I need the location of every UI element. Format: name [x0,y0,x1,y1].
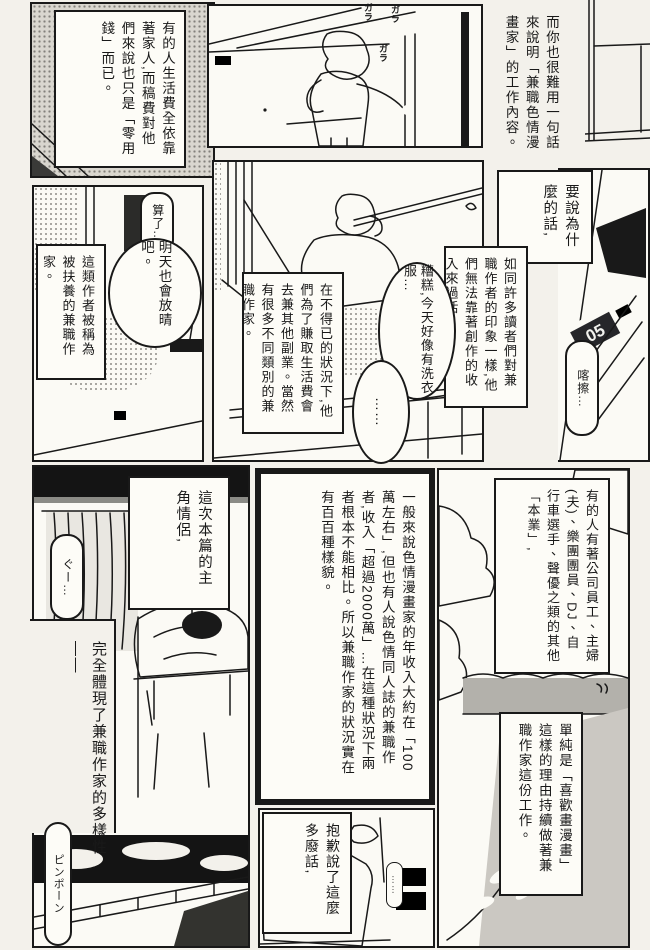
sfx-click-text: 喀擦… [574,369,590,408]
sfx-slide-door-1: ガラ [362,3,375,21]
sfx-bubble-click: 喀擦… [565,340,599,436]
corner-wall-art [585,0,650,148]
caption-allowance: 有的人生活費全依靠著家人,而稿費對他們來說也只是「零用錢」而已。 [54,10,186,168]
sfx-bubble-doorbell: ピンポーン [44,822,72,946]
caption-side-jobs: 在不得已的狀況下,他們為了賺取生活費會去兼其他副業。當然有很多不同類別的兼職作家… [242,272,344,434]
caption-income: 一般來說色情漫畫家的年收入大約在「100萬左右」,但也有人說色情同人誌的兼職作者… [255,468,435,805]
panel-hallway [207,4,483,148]
caption-other-jobs: 有的人有著公司員工、主婦(夫)、樂團團員、DJ、自行車選手、聲優之類的其他「本業… [494,478,610,674]
speech-bubble-tiny-dots: …… [386,862,403,908]
caption-reason: 單純是「喜歡畫漫畫」這樣的理由持續做著兼職作家這份工作。 [499,712,583,896]
panel-hallway-art [209,6,481,146]
sfx-slide-door-2: ガラ [389,5,402,23]
speech-bubble-dots: …… [352,360,410,464]
speech-tiny-dots-text: …… [389,875,401,895]
sfx-snore-text: ぐー… [59,558,75,597]
speech-laundry-text: 糟糕,今天好像有洗衣服… [400,264,434,398]
speech-dots-text: …… [372,397,390,427]
caption-dependent: 這類作者被稱為被扶養的兼職作家。 [36,244,106,380]
caption-apology: 抱歉說了這麼多廢話, [262,812,352,934]
caption-protagonists: 這次本篇的主角情侶, [128,476,230,610]
sfx-bubble-snore: ぐー… [50,534,84,620]
sfx-doorbell-text: ピンポーン [51,854,65,914]
speech-bubble-sunny: 明天也會放晴吧。 [108,238,202,348]
caption-hard-to-explain: 而你也很難用一句話來說明「兼職色情漫畫家」的工作內容。 [490,6,568,166]
speech-oh-well-text: 算了… [149,204,165,243]
speech-sunny-text: 明天也會放晴吧。 [137,240,172,346]
manga-page: 有的人生活費全依靠著家人,而稿費對他們來說也只是「零用錢」而已。 ガラ ガラ ガ… [0,0,650,950]
caption-readers-impression: 如同許多讀者們對兼職作者的印象一樣,他們無法靠著創作的收入來過活, [444,246,528,408]
sfx-slide-door-3: ガラ [377,44,390,62]
